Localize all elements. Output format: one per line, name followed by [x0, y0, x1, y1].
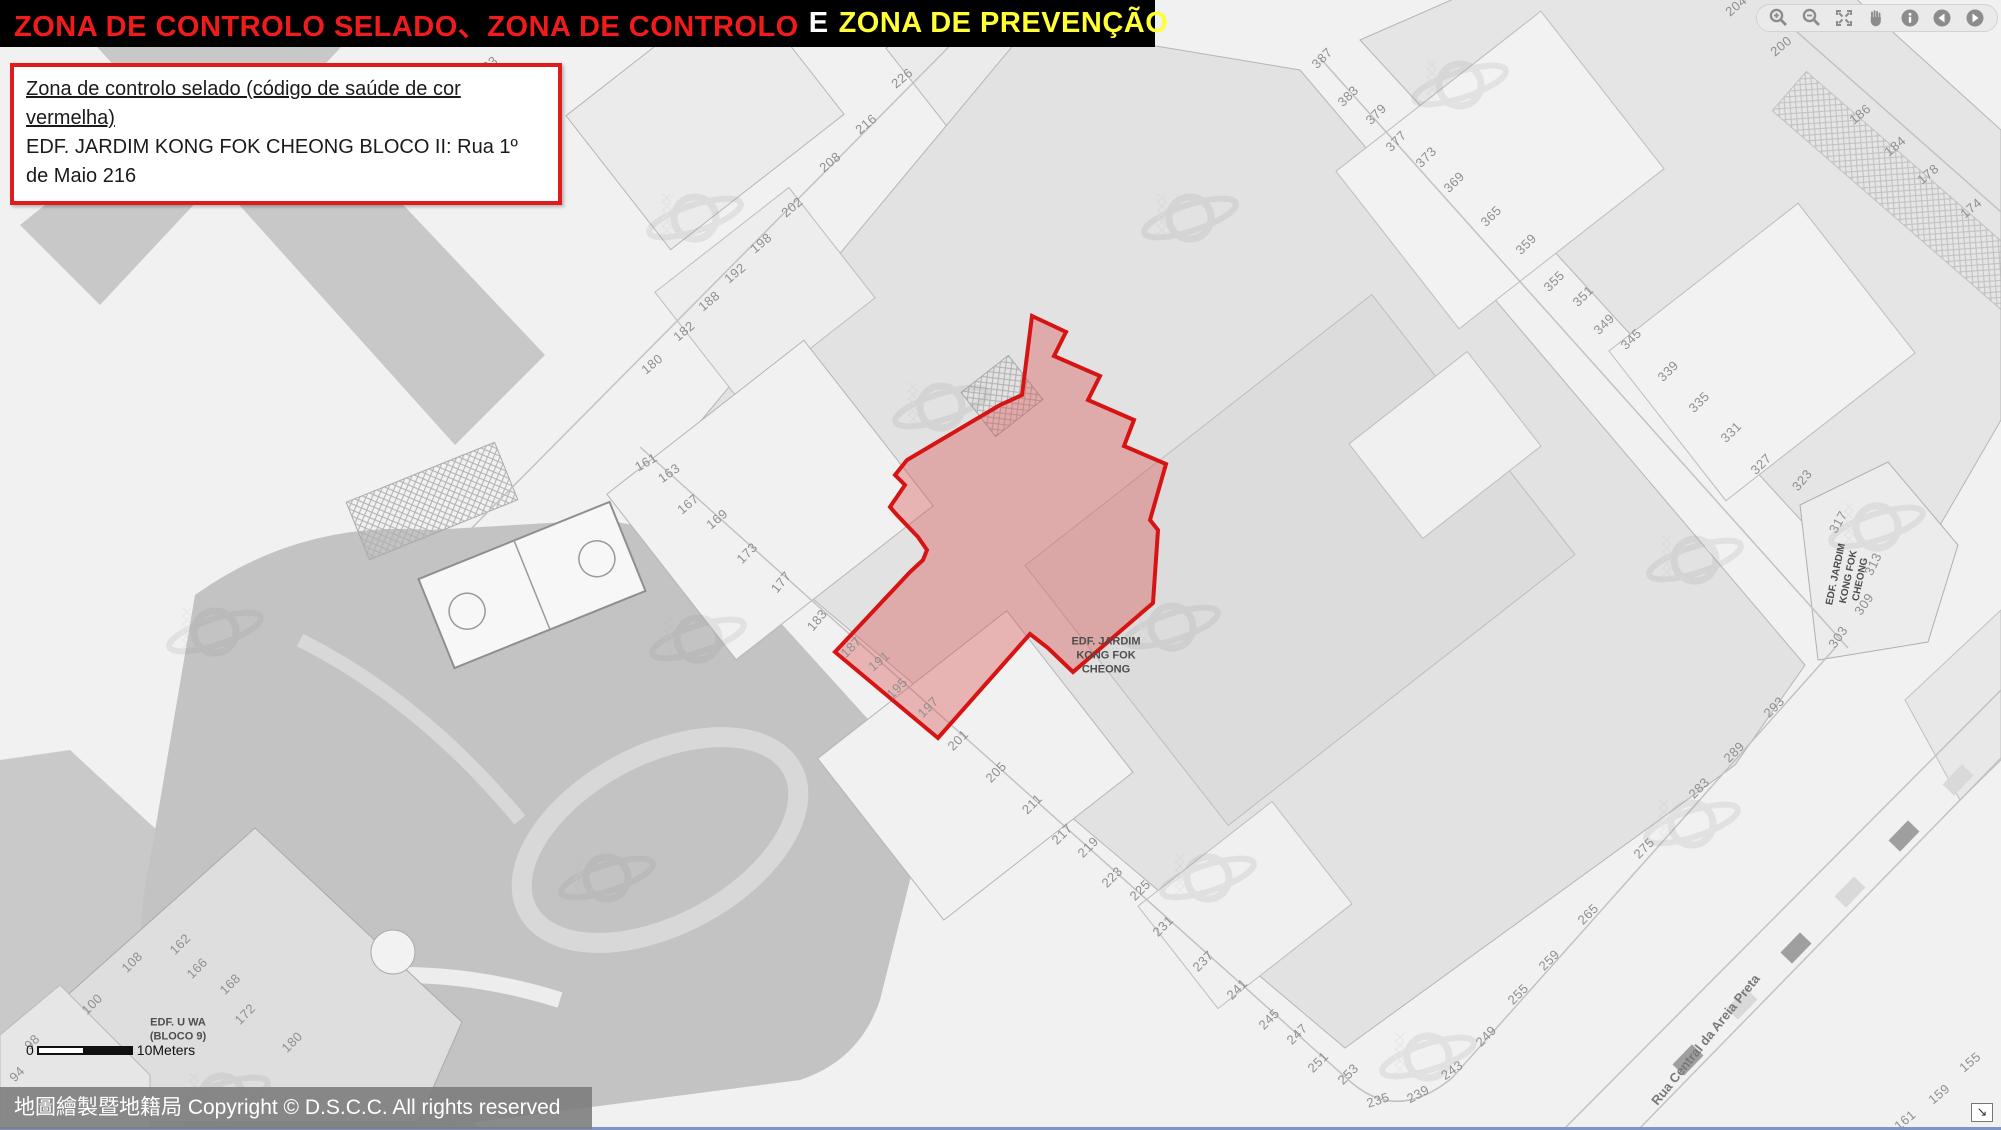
map-viewport[interactable]: 2262162082021981921881821802031611631671…	[0, 0, 2001, 1130]
zoom-in-icon[interactable]	[1766, 6, 1792, 30]
info-box-title: Zona de controlo selado (código de saúde…	[26, 78, 461, 129]
title-yellow-segment: ZONA DE PREVENÇÃO	[839, 7, 1169, 40]
scale-bar: 0 10Meters	[26, 1042, 195, 1058]
previous-extent-icon[interactable]	[1929, 6, 1955, 30]
sealed-zone-info-box: Zona de controlo selado (código de saúde…	[10, 63, 562, 205]
next-extent-icon[interactable]	[1962, 6, 1988, 30]
overview-map-toggle-icon[interactable]: ↘	[1971, 1103, 1993, 1122]
pan-hand-icon[interactable]	[1864, 6, 1890, 30]
info-box-detail: EDF. JARDIM KONG FOK CHEONG BLOCO II: Ru…	[26, 136, 518, 187]
identify-icon[interactable]	[1897, 6, 1923, 30]
title-white-segment: E	[799, 7, 839, 40]
zoom-out-icon[interactable]	[1799, 6, 1825, 30]
copyright-bar: 地圖繪製暨地籍局 Copyright © D.S.C.C. All rights…	[0, 1087, 592, 1129]
scale-start-label: 0	[26, 1042, 34, 1058]
page-title: ZONA DE CONTROLO SELADO、ZONA DE CONTROLO…	[0, 0, 1155, 47]
map-toolbar	[1756, 4, 1998, 32]
scale-bar-graphic	[37, 1046, 133, 1055]
building-detail	[371, 930, 415, 974]
full-extent-icon[interactable]	[1831, 6, 1857, 30]
scale-end-label: 10Meters	[137, 1042, 195, 1058]
title-red-segment: ZONA DE CONTROLO SELADO、ZONA DE CONTROLO	[14, 3, 799, 45]
